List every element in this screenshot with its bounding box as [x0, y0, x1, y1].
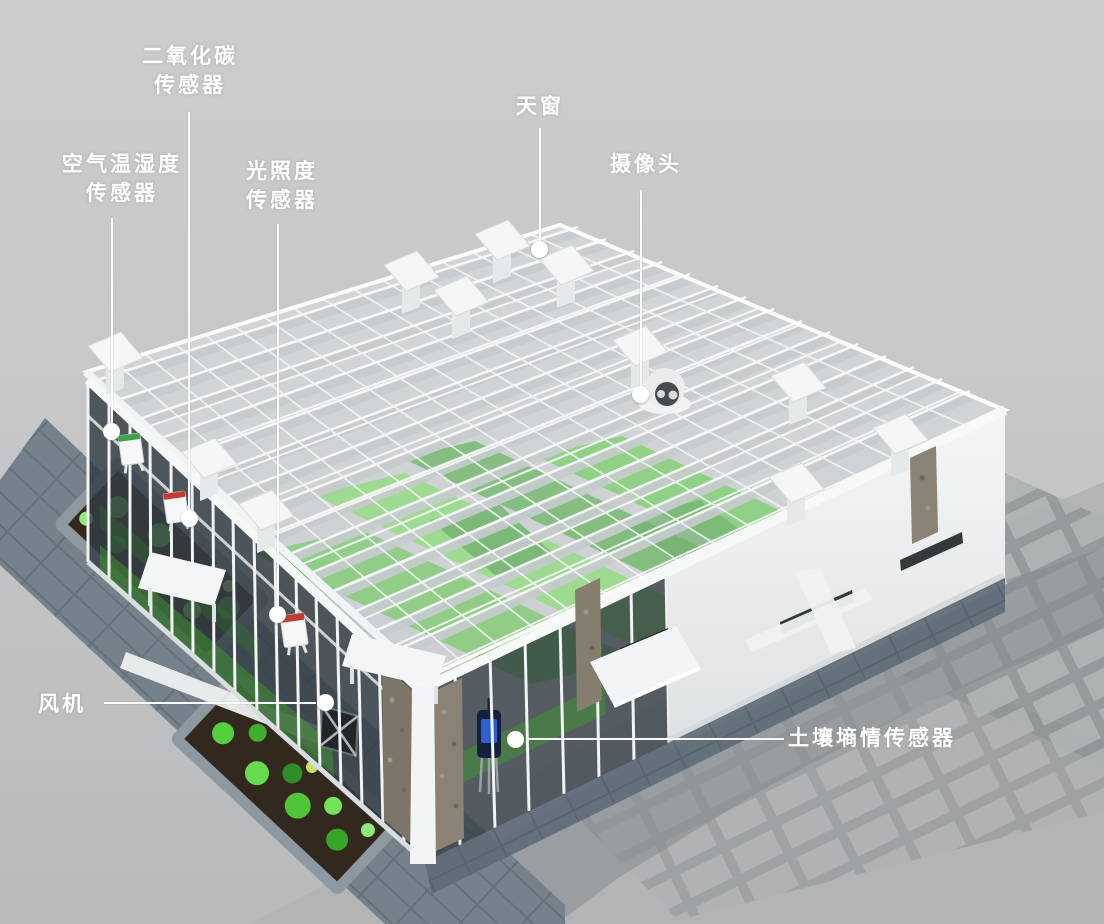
leader-line-soil [528, 738, 784, 740]
leader-dot-co2 [181, 510, 198, 527]
leader-dot-light [269, 606, 286, 623]
label-co2-line1: 二氧化碳 [110, 42, 270, 71]
label-air-line2: 传感器 [42, 179, 202, 208]
leader-dot-skylight [531, 241, 548, 258]
leader-dot-soil [507, 731, 524, 748]
leader-dot-camera [632, 386, 649, 403]
label-light-line1: 光照度 [202, 157, 362, 186]
label-light-intensity-sensor: 光照度 传感器 [202, 157, 362, 216]
greenhouse-3d-illustration [0, 0, 1104, 924]
leader-line-fan [104, 702, 316, 704]
corner-pillar [410, 686, 436, 864]
label-camera: 摄像头 [586, 150, 706, 179]
leader-line-light [277, 224, 279, 612]
label-skylight: 天窗 [488, 92, 592, 121]
label-light-line2: 传感器 [202, 186, 362, 215]
label-co2-sensor: 二氧化碳 传感器 [110, 42, 270, 101]
leader-line-skylight [539, 128, 541, 247]
label-air-line1: 空气温湿度 [42, 150, 202, 179]
label-co2-line2: 传感器 [110, 71, 270, 100]
leader-line-air [111, 218, 113, 429]
label-air-temp-humidity-sensor: 空气温湿度 传感器 [42, 150, 202, 209]
leader-line-camera [640, 190, 642, 392]
soil-moisture-sensor-device [477, 698, 501, 794]
greenhouse-sensor-diagram: 二氧化碳 传感器 空气温湿度 传感器 光照度 传感器 天窗 摄像头 风机 土壤墒… [0, 0, 1104, 924]
leader-dot-air [103, 423, 120, 440]
label-soil-moisture-sensor: 土壤墒情传感器 [788, 724, 956, 753]
leader-dot-fan [317, 694, 334, 711]
label-fan: 风机 [38, 690, 86, 719]
